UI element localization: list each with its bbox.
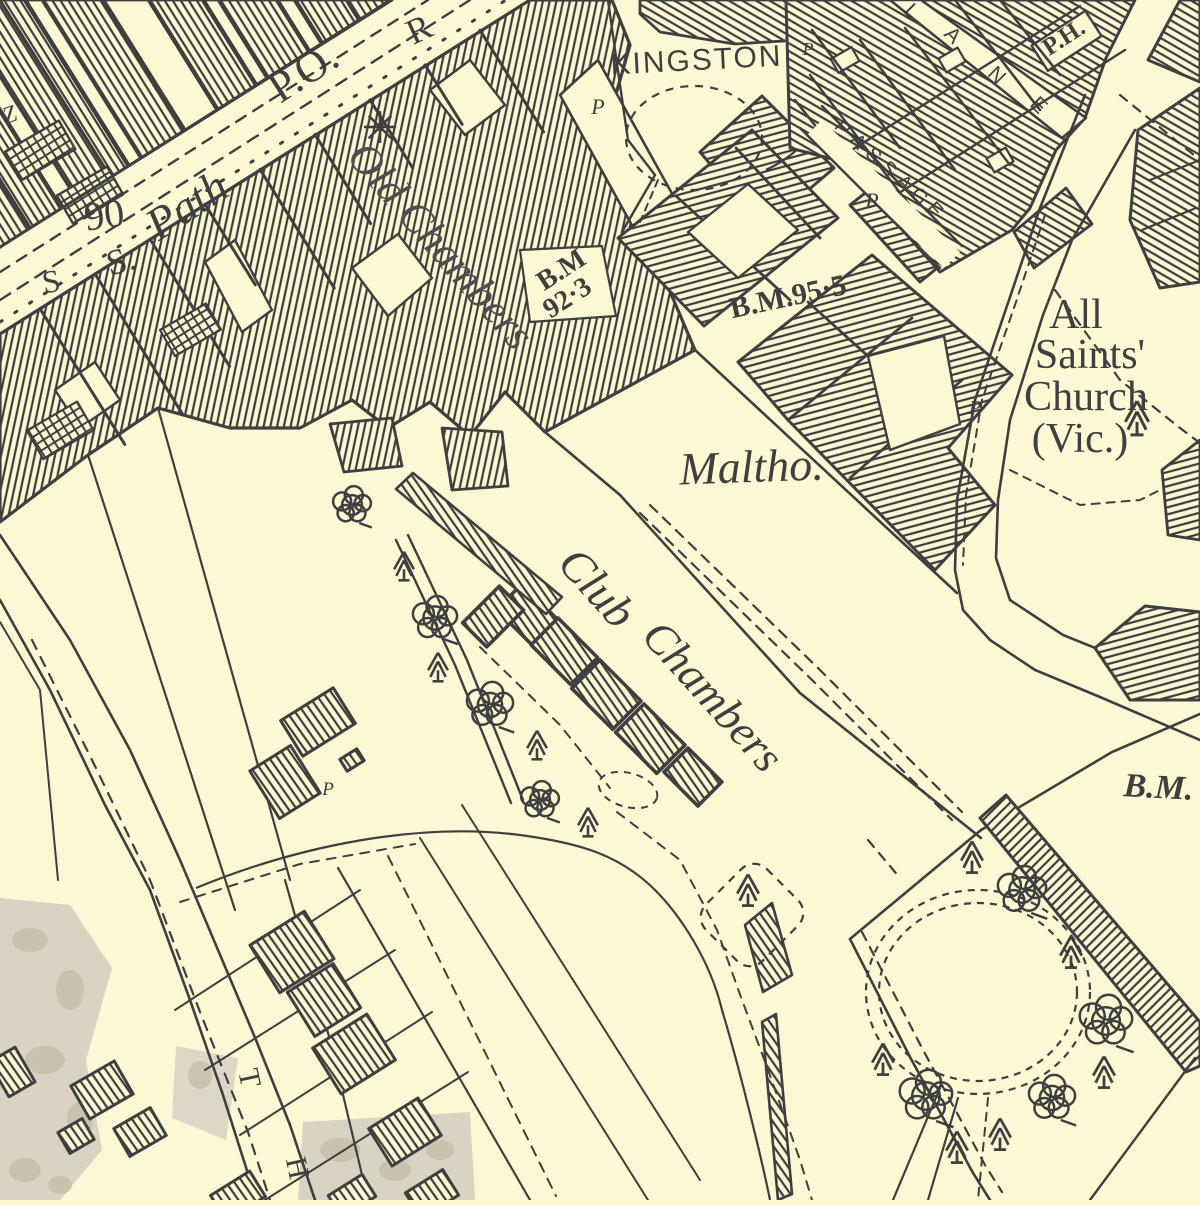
- svg-text:Maltho.: Maltho.: [677, 439, 824, 495]
- svg-text:(Vic.): (Vic.): [1032, 416, 1129, 462]
- svg-text:B.M.: B.M.: [1122, 767, 1195, 808]
- svg-text:P: P: [590, 94, 604, 119]
- svg-text:P: P: [968, 397, 981, 419]
- svg-text:P: P: [802, 39, 814, 59]
- svg-text:Saints': Saints': [1035, 332, 1145, 378]
- svg-text:P: P: [864, 188, 878, 213]
- svg-text:P: P: [321, 779, 334, 800]
- svg-text:90: 90: [81, 190, 127, 240]
